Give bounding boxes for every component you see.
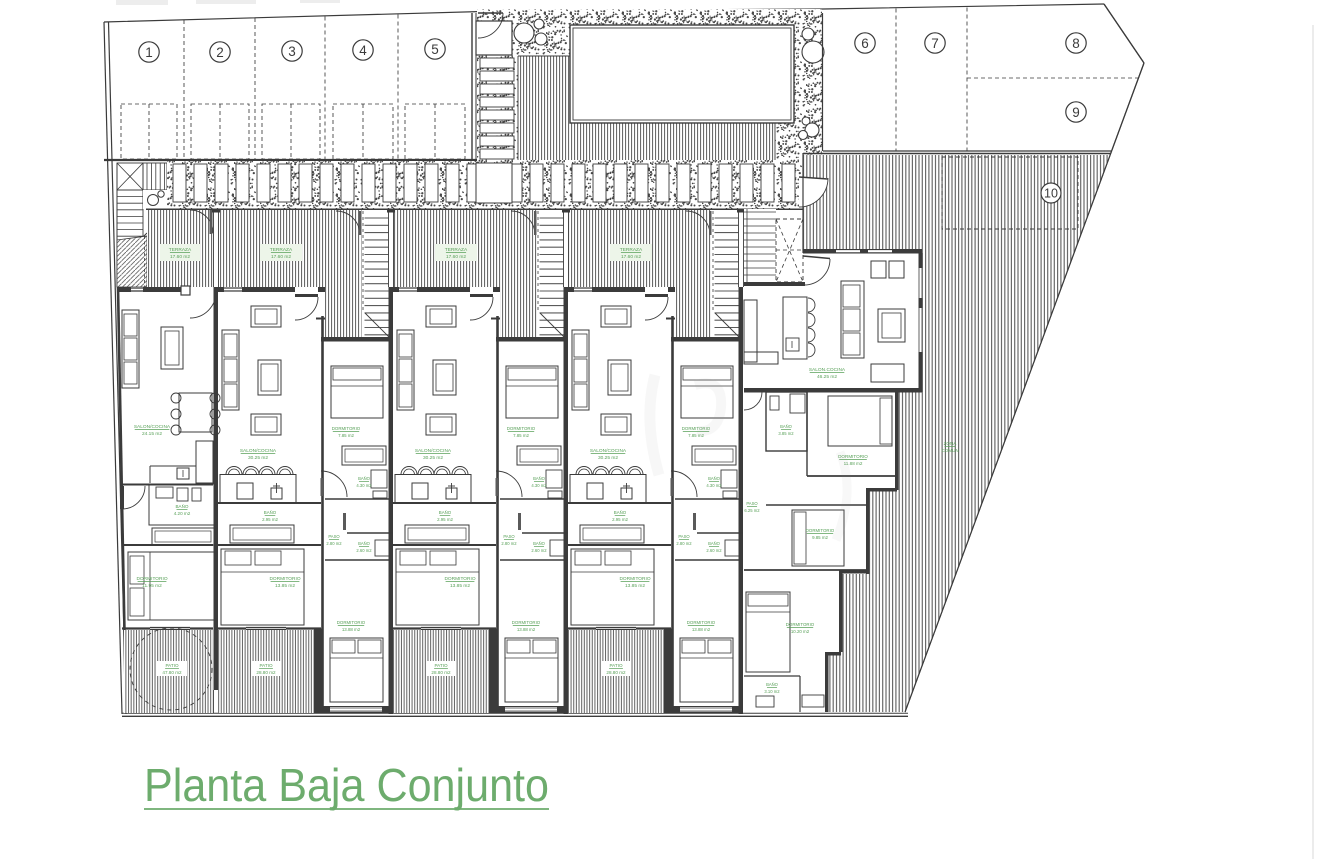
svg-text:10.20 m2: 10.20 m2	[791, 629, 810, 634]
svg-text:4.30 m2: 4.30 m2	[706, 483, 722, 488]
svg-text:TERRAZA: TERRAZA	[445, 247, 468, 253]
svg-text:11.95 m2: 11.95 m2	[142, 583, 162, 589]
svg-text:7.85 m2: 7.85 m2	[513, 433, 529, 438]
svg-text:6.25 m2: 6.25 m2	[744, 508, 760, 513]
svg-text:PASO: PASO	[678, 534, 690, 539]
svg-text:1: 1	[145, 45, 153, 60]
svg-text:PATIO: PATIO	[609, 663, 623, 668]
svg-text:2.95 m2: 2.95 m2	[437, 517, 453, 522]
svg-text:DORMITORIO: DORMITORIO	[806, 528, 835, 533]
svg-text:17.60 m2: 17.60 m2	[271, 254, 291, 260]
svg-text:DORMITORIO: DORMITORIO	[444, 576, 475, 582]
svg-text:TERRAZA: TERRAZA	[169, 247, 192, 253]
svg-text:SALON.COCINA: SALON.COCINA	[809, 367, 846, 373]
svg-text:2.80 m2: 2.80 m2	[676, 541, 692, 546]
svg-text:8: 8	[1072, 36, 1080, 51]
svg-text:2.95 m2: 2.95 m2	[262, 517, 278, 522]
svg-text:30.25 m2: 30.25 m2	[248, 455, 268, 461]
svg-text:28.80 m2: 28.80 m2	[431, 670, 451, 675]
svg-text:13.88 m2: 13.88 m2	[342, 627, 361, 632]
svg-text:2: 2	[216, 45, 224, 60]
svg-text:SALON/COCINA: SALON/COCINA	[240, 448, 277, 454]
svg-text:SALON/COCINA: SALON/COCINA	[590, 448, 627, 454]
svg-text:3.10 m2: 3.10 m2	[764, 689, 780, 694]
svg-text:2.80 m2: 2.80 m2	[326, 541, 342, 546]
svg-text:2.60 m2: 2.60 m2	[706, 548, 722, 553]
svg-text:6: 6	[861, 36, 869, 51]
svg-text:BAÑO: BAÑO	[533, 541, 546, 546]
svg-text:13.85 m2: 13.85 m2	[275, 583, 295, 589]
svg-text:30.25 m2: 30.25 m2	[423, 455, 443, 461]
svg-text:PATIO: PATIO	[259, 663, 273, 668]
svg-text:TERRAZA: TERRAZA	[270, 247, 293, 253]
svg-text:46.25 m2: 46.25 m2	[817, 374, 837, 380]
svg-text:5: 5	[431, 42, 439, 57]
svg-text:BAÑO: BAÑO	[175, 503, 188, 509]
svg-text:BAÑO: BAÑO	[264, 510, 277, 515]
svg-text:7.85 m2: 7.85 m2	[338, 433, 354, 438]
svg-text:17.60 m2: 17.60 m2	[446, 254, 466, 260]
svg-text:13.85 m2: 13.85 m2	[450, 583, 470, 589]
svg-text:DORMITORIO: DORMITORIO	[619, 576, 650, 582]
svg-text:9: 9	[1072, 105, 1080, 120]
svg-text:2.60 m2: 2.60 m2	[531, 548, 547, 553]
svg-text:DORMITORIO: DORMITORIO	[786, 622, 815, 627]
svg-text:2.80 m2: 2.80 m2	[501, 541, 517, 546]
svg-text:BAÑO: BAÑO	[708, 541, 721, 546]
svg-text:10: 10	[1044, 187, 1058, 201]
svg-text:DORMITORIO: DORMITORIO	[269, 576, 300, 582]
svg-text:3: 3	[288, 44, 296, 59]
svg-text:ZONA: ZONA	[944, 441, 958, 446]
svg-text:PATIO: PATIO	[165, 663, 179, 668]
svg-text:DORMITORIO: DORMITORIO	[136, 576, 167, 582]
svg-text:28.80 m2: 28.80 m2	[606, 670, 626, 675]
svg-text:BAÑO: BAÑO	[614, 510, 627, 515]
svg-text:DORMITORIO: DORMITORIO	[687, 620, 716, 625]
svg-text:BAÑO: BAÑO	[358, 541, 371, 546]
svg-text:17.60 m2: 17.60 m2	[621, 254, 641, 260]
svg-text:BAÑO: BAÑO	[439, 510, 452, 515]
svg-text:13.88 m2: 13.88 m2	[692, 627, 711, 632]
svg-text:9.85 m2: 9.85 m2	[812, 535, 828, 540]
svg-text:4: 4	[359, 43, 367, 58]
svg-text:13.85 m2: 13.85 m2	[625, 583, 645, 589]
svg-text:DORMITORIO: DORMITORIO	[512, 620, 541, 625]
svg-text:PASO: PASO	[503, 534, 515, 539]
svg-text:7: 7	[931, 36, 939, 51]
svg-text:BAÑO: BAÑO	[708, 476, 721, 481]
svg-text:TERRAZA: TERRAZA	[620, 247, 643, 253]
svg-text:DORMITORIO: DORMITORIO	[507, 426, 536, 431]
svg-text:BAÑO: BAÑO	[358, 476, 371, 481]
svg-text:BAÑO: BAÑO	[780, 424, 793, 429]
svg-text:24.15 m2: 24.15 m2	[142, 431, 162, 437]
svg-text:SALON/COCINA: SALON/COCINA	[415, 448, 452, 454]
svg-text:3.85 m2: 3.85 m2	[778, 431, 794, 436]
svg-text:BAÑO: BAÑO	[533, 476, 546, 481]
svg-text:28.80 m2: 28.80 m2	[256, 670, 276, 675]
svg-text:4.30 m2: 4.30 m2	[531, 483, 547, 488]
svg-text:4.20 m2: 4.20 m2	[174, 511, 191, 516]
svg-text:DORMITORIO: DORMITORIO	[337, 620, 366, 625]
svg-text:30.25 m2: 30.25 m2	[598, 455, 618, 461]
svg-text:Planta Baja Conjunto: Planta Baja Conjunto	[144, 759, 549, 811]
svg-text:17.60 m2: 17.60 m2	[170, 254, 190, 260]
svg-text:13.88 m2: 13.88 m2	[517, 627, 536, 632]
svg-text:2.60 m2: 2.60 m2	[356, 548, 372, 553]
svg-text:DORMITORIO: DORMITORIO	[332, 426, 361, 431]
svg-text:2.95 m2: 2.95 m2	[612, 517, 628, 522]
svg-text:PASO: PASO	[746, 501, 758, 506]
svg-text:4.30 m2: 4.30 m2	[356, 483, 372, 488]
svg-text:PATIO: PATIO	[434, 663, 448, 668]
svg-text:COMUN: COMUN	[941, 448, 958, 453]
svg-text:BAÑO: BAÑO	[766, 682, 779, 687]
svg-text:PASO: PASO	[328, 534, 340, 539]
svg-text:47.80 m2: 47.80 m2	[162, 670, 182, 675]
svg-text:SALON/COCINA: SALON/COCINA	[134, 424, 171, 430]
